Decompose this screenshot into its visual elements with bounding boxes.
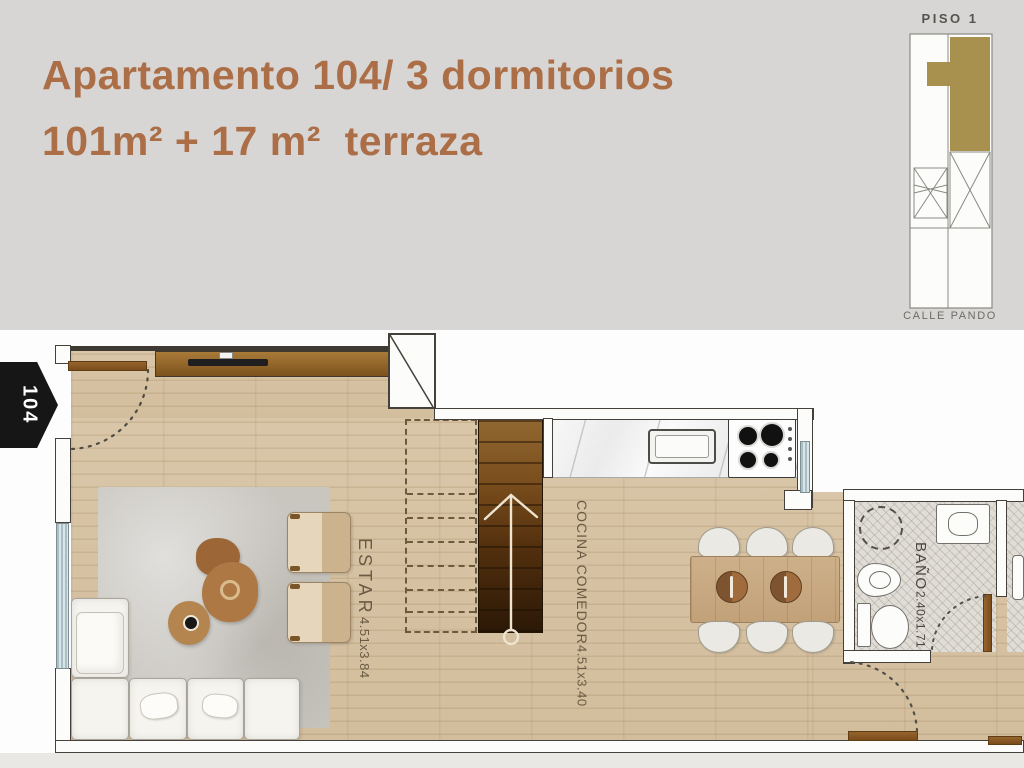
adjacent-room-fixture	[1012, 555, 1024, 600]
toilet-tank	[857, 603, 871, 647]
keyplan-street-label: CALLE PANDO	[872, 310, 1024, 322]
vanity-basin	[948, 512, 978, 536]
sofa-chaise-cushion	[76, 612, 124, 674]
dining-chair	[792, 527, 834, 559]
cooktop	[728, 418, 796, 478]
table-centerpiece-2	[770, 571, 802, 603]
staircase	[478, 417, 543, 633]
wall-bathroom-left	[843, 500, 855, 664]
room-label-bano: BAÑO 2.40x1.71	[910, 542, 931, 654]
window-living	[56, 523, 69, 669]
room-label-cocina: COCINA COMEDOR 4.51x3.40	[572, 500, 592, 715]
header-band	[0, 0, 1024, 330]
cooktop-knobs	[788, 427, 792, 431]
wall-top-living	[71, 346, 391, 351]
tv-mount	[219, 352, 233, 359]
column	[784, 490, 812, 510]
entry-door-leaf	[68, 361, 147, 371]
burner-icon	[739, 427, 757, 445]
hall-door-leaf	[848, 731, 918, 741]
keyplan-floor-label: PISO 1	[880, 11, 1020, 26]
toilet-bowl	[871, 605, 909, 649]
cocina-dims: 4.51x3.40	[575, 645, 590, 707]
page-bottom-strip	[0, 753, 1024, 768]
wall-bottom	[55, 740, 1024, 753]
estar-dims: 4.51x3.84	[357, 617, 372, 679]
duct-shaft	[388, 333, 436, 409]
threshold	[988, 736, 1022, 745]
window-kitchen	[800, 441, 810, 493]
wall-left-3	[55, 668, 71, 748]
armchair-2	[287, 582, 351, 643]
unit-number-label: 104	[18, 385, 41, 424]
table-centerpiece-1	[716, 571, 748, 603]
burner-icon	[761, 424, 783, 446]
wall-stair-kitchen-stub	[543, 418, 553, 478]
room-label-estar: ESTAR 4.51x3.84	[352, 538, 377, 668]
wall-bathroom-right	[996, 500, 1007, 597]
dining-table	[690, 556, 840, 623]
dining-chair	[746, 527, 788, 559]
stair-upper-flight-dashed	[405, 419, 477, 633]
bano-name: BAÑO	[912, 542, 929, 591]
page-title-line1: Apartamento 104/ 3 dormitorios	[42, 52, 674, 99]
sofa-seat-3	[244, 678, 300, 740]
wall-left-2	[55, 438, 71, 523]
page-title-line2: 101m² + 17 m² terraza	[42, 118, 483, 165]
bano-dims: 2.40x1.71	[914, 591, 928, 648]
armchair-1	[287, 512, 351, 573]
keyplan-building-diagram	[902, 30, 1010, 312]
dining-chair	[698, 527, 740, 559]
wall-top-kitchen	[434, 408, 814, 420]
tv-screen	[188, 359, 268, 366]
bathroom-door-leaf	[983, 594, 992, 652]
cocina-name: COCINA COMEDOR	[574, 500, 590, 645]
side-table-bowl	[183, 615, 199, 631]
coffee-table-decor-ring	[220, 580, 240, 600]
estar-name: ESTAR	[354, 538, 375, 617]
kitchen-sink-basin	[655, 435, 709, 458]
unit-number-tag: 104	[0, 362, 58, 448]
bidet-basin	[869, 571, 891, 589]
burner-icon	[764, 453, 778, 467]
sofa-corner-seat	[71, 678, 129, 740]
burner-icon	[740, 452, 756, 468]
